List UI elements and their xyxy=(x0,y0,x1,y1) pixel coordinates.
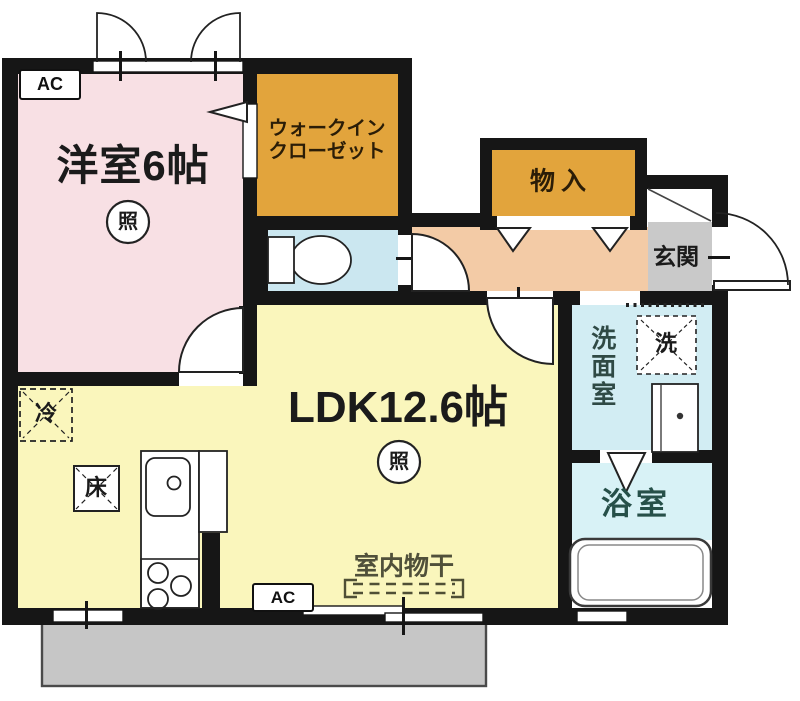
bedroom-label: 洋室6帖 xyxy=(56,141,209,191)
ldk-label: LDK12.6帖 xyxy=(288,382,508,434)
ac-badge-bedroom: AC xyxy=(19,69,81,100)
window-tick xyxy=(214,51,217,81)
toilet-tank xyxy=(268,237,294,283)
bedroom-casement-windows xyxy=(97,13,240,62)
ldk-light-label: 照 xyxy=(389,451,409,475)
sink-faucet xyxy=(168,477,181,490)
floor-storage-label: 床 xyxy=(85,475,107,501)
door-tick xyxy=(708,256,730,259)
wall-washroom-bathroom-left xyxy=(572,450,600,463)
balcony xyxy=(42,620,486,686)
bathroom-label: 浴室 xyxy=(601,487,671,524)
wall-toilet-left xyxy=(255,230,268,291)
entrance-label: 玄関 xyxy=(653,243,699,270)
washer-label: 洗 xyxy=(655,331,677,357)
wall-hall-top xyxy=(398,213,480,227)
washroom-label: 洗面室 xyxy=(586,325,616,409)
indoor-drying-label: 室内物干 xyxy=(354,552,454,582)
toilet-bowl xyxy=(291,236,351,284)
front-door-leaf xyxy=(714,281,790,290)
ac-badge-ldk: AC xyxy=(252,583,314,612)
storage-label: 物入 xyxy=(530,167,592,197)
wall-storage-bottom-right xyxy=(629,216,647,230)
wall-right-lower xyxy=(712,285,728,625)
wall-wic-bottom xyxy=(243,216,412,230)
floor-plan-drawing xyxy=(0,0,800,701)
kitchen-counter xyxy=(199,451,227,532)
wall-right-upper xyxy=(712,175,728,227)
wall-kitchen-stub xyxy=(202,533,220,608)
wall-bedroom-bottom xyxy=(2,372,179,386)
wall-under-entrance xyxy=(640,291,728,305)
vanity-cabinet xyxy=(652,384,698,452)
wic-label-line1: ウォークイン xyxy=(268,118,385,141)
bathroom-window xyxy=(577,611,627,622)
wall-wic-right xyxy=(398,58,412,230)
balcony-sliding-door-panel-2 xyxy=(385,613,483,622)
window-tick xyxy=(85,601,88,629)
bedroom-top-window xyxy=(93,61,243,72)
wall-storage-top xyxy=(480,138,647,150)
wic-label-line2: クローゼット xyxy=(268,141,385,164)
floor-plan: 洋室6帖 ウォークイン クローゼット 物入 玄関 LDK12.6帖 洗面室 洗 … xyxy=(0,0,800,701)
bedroom-light-label: 照 xyxy=(118,211,138,235)
wall-left xyxy=(2,58,18,625)
wall-storage-bottom-left xyxy=(480,216,498,230)
window-tick xyxy=(402,597,405,635)
vanity-handle xyxy=(677,413,683,419)
fridge-label: 冷 xyxy=(35,401,57,427)
wall-hall-bottom-left xyxy=(255,291,487,305)
window-tick xyxy=(119,51,122,81)
bathtub xyxy=(570,539,711,606)
wall-toilet-right-top xyxy=(398,230,412,235)
